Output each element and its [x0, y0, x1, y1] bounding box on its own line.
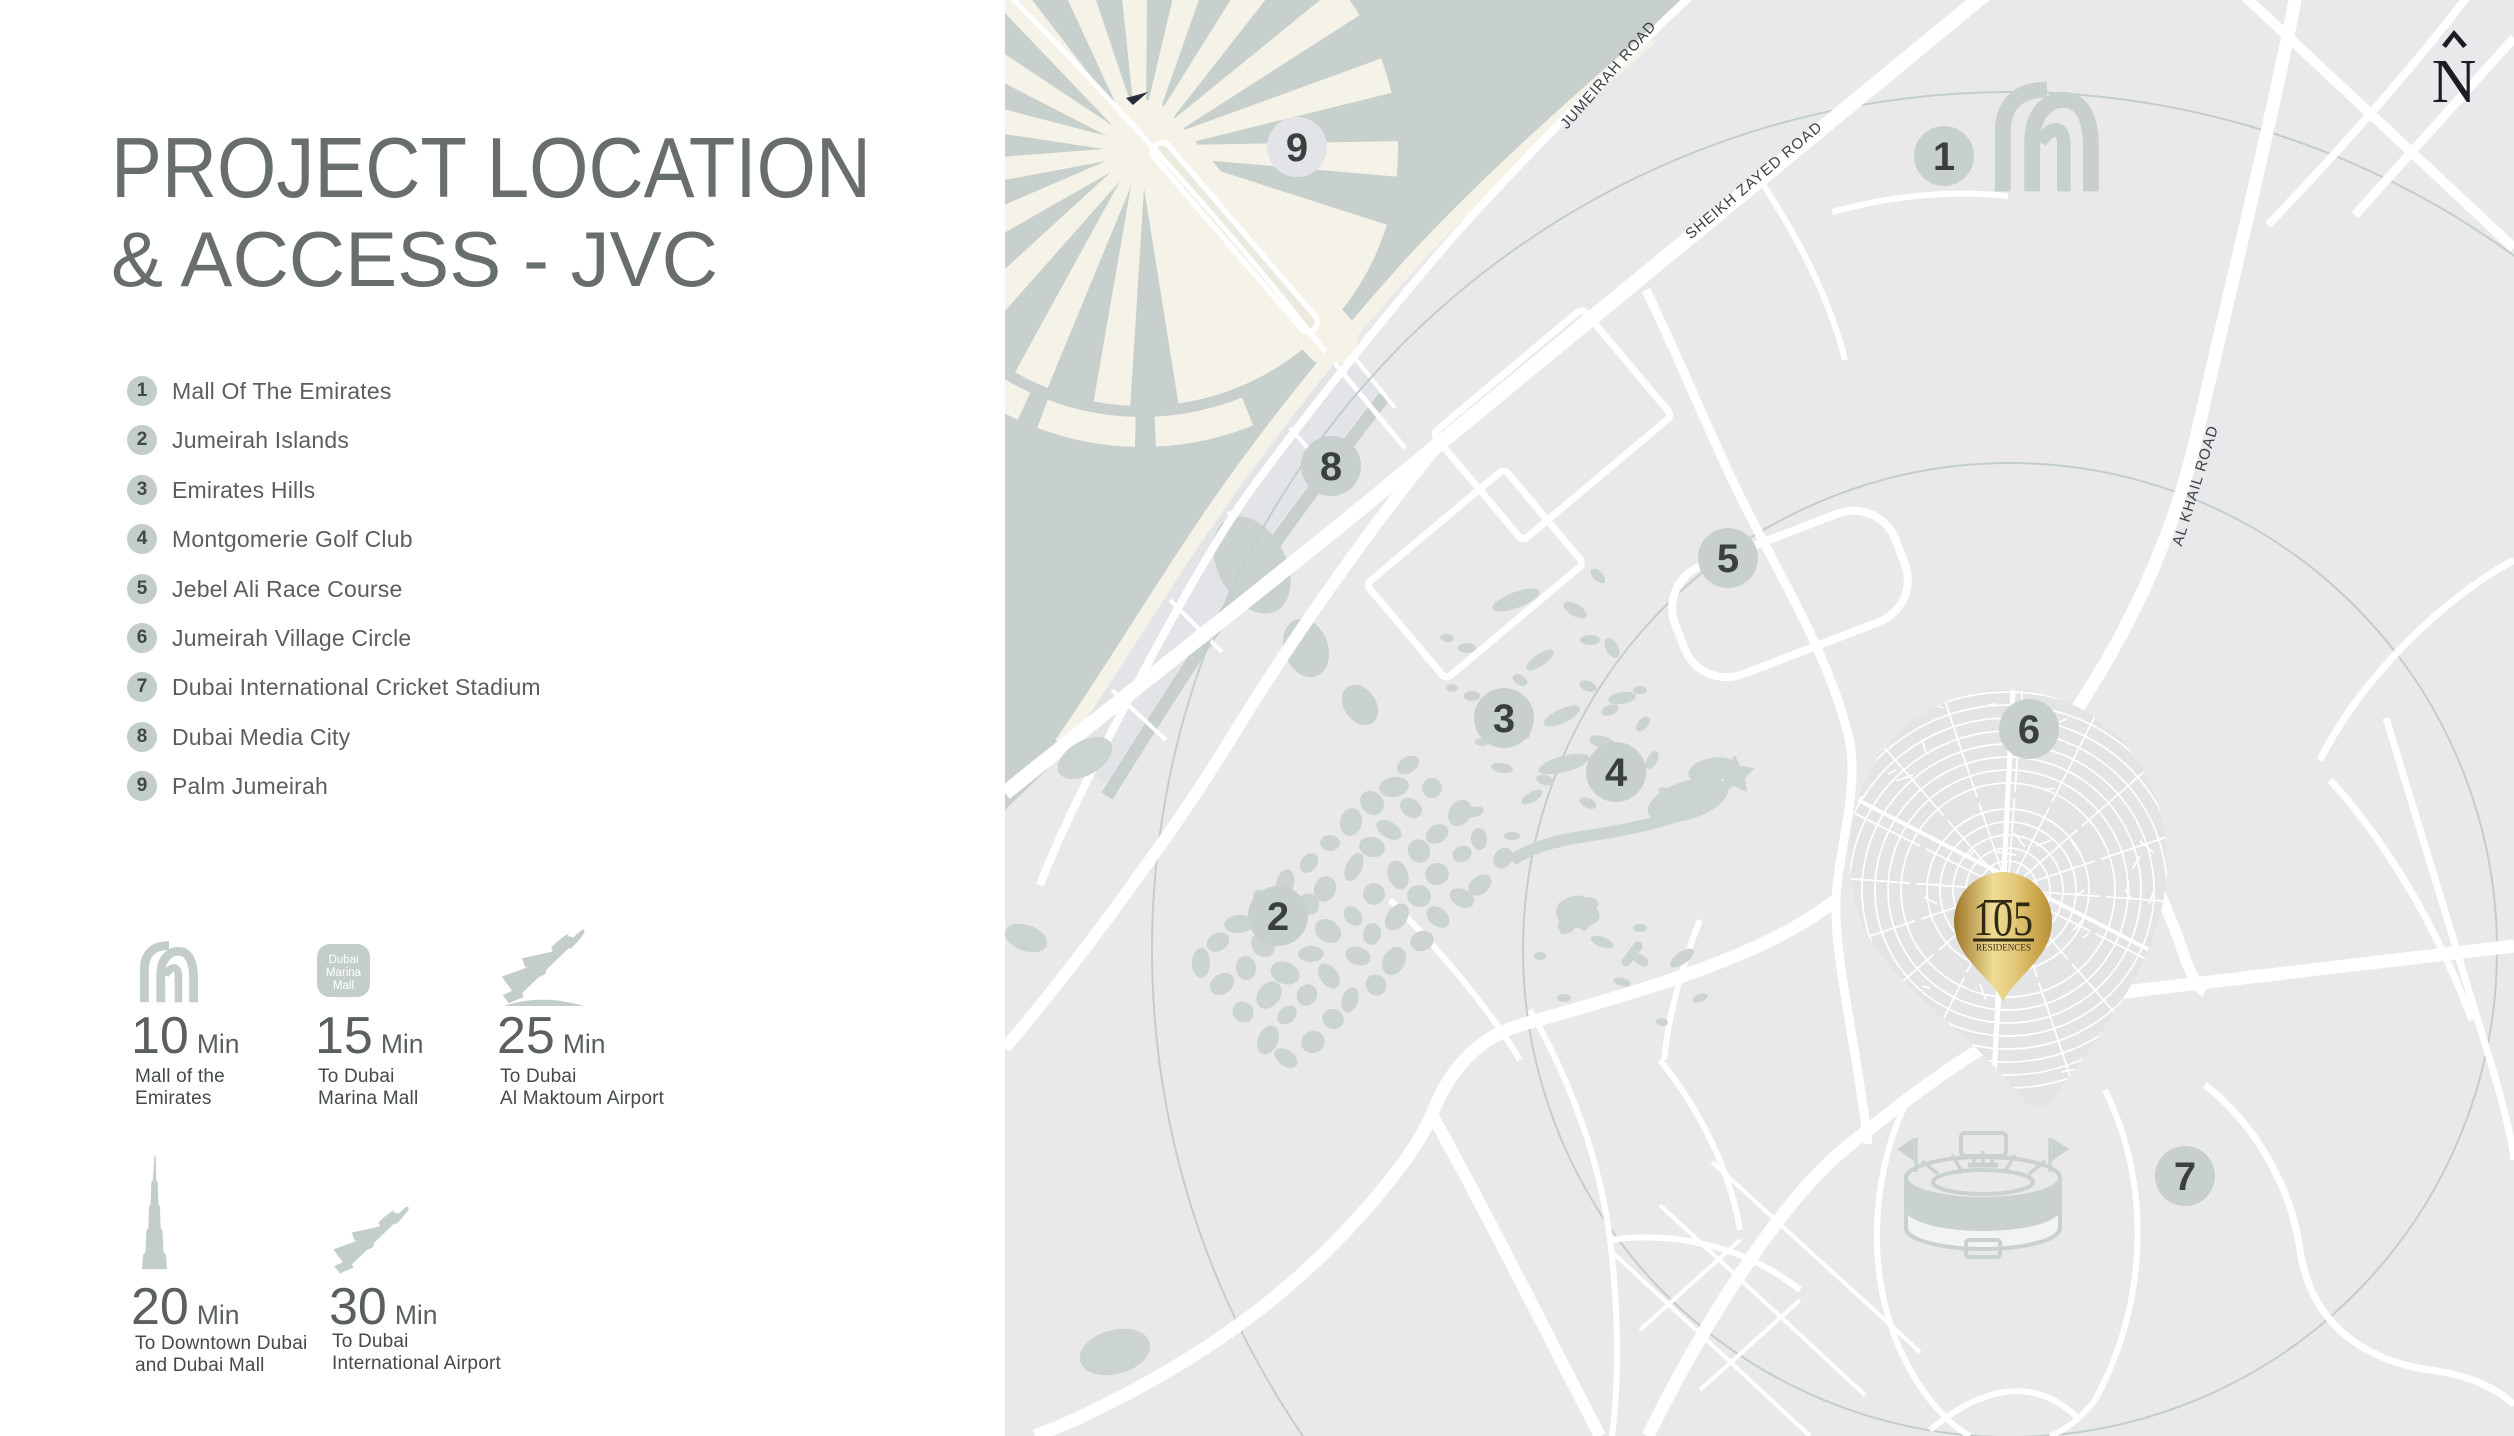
svg-text:N: N	[2432, 48, 2477, 116]
svg-text:1: 1	[1933, 135, 1955, 179]
svg-text:9: 9	[1286, 126, 1308, 170]
svg-text:3: 3	[1493, 697, 1515, 741]
svg-text:& ACCESS - JVC: & ACCESS - JVC	[111, 215, 718, 303]
svg-text:Mall: Mall	[333, 980, 354, 992]
svg-text:6: 6	[2018, 708, 2040, 752]
svg-text:105: 105	[1973, 890, 2033, 946]
svg-text:5: 5	[1717, 537, 1739, 581]
svg-text:2: 2	[1267, 895, 1289, 939]
svg-text:8: 8	[1320, 445, 1342, 489]
svg-text:RESIDENCES: RESIDENCES	[1976, 943, 2031, 953]
svg-text:4: 4	[1605, 751, 1628, 795]
svg-text:Dubai: Dubai	[328, 954, 358, 966]
svg-text:Marina: Marina	[326, 967, 362, 979]
svg-text:7: 7	[2174, 1155, 2196, 1199]
svg-text:PROJECT LOCATION: PROJECT LOCATION	[111, 121, 871, 216]
